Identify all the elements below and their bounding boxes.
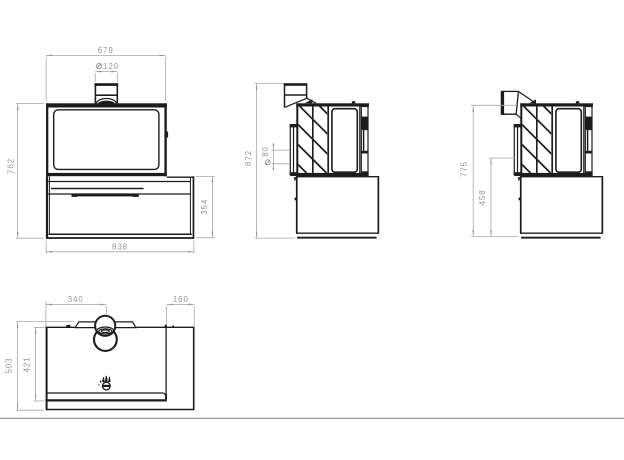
svg-text:775: 775 [460, 161, 469, 177]
svg-text:120: 120 [103, 62, 119, 71]
svg-text:80: 80 [261, 146, 270, 157]
svg-text:458: 458 [478, 190, 487, 206]
svg-text:503: 503 [4, 358, 13, 374]
svg-text:762: 762 [7, 158, 16, 174]
svg-text:160: 160 [173, 295, 189, 304]
svg-text:838: 838 [112, 243, 128, 252]
svg-text:872: 872 [244, 150, 253, 166]
svg-text:354: 354 [200, 199, 209, 215]
svg-text:340: 340 [68, 295, 84, 304]
svg-text:679: 679 [98, 46, 114, 55]
svg-text:421: 421 [22, 357, 31, 373]
